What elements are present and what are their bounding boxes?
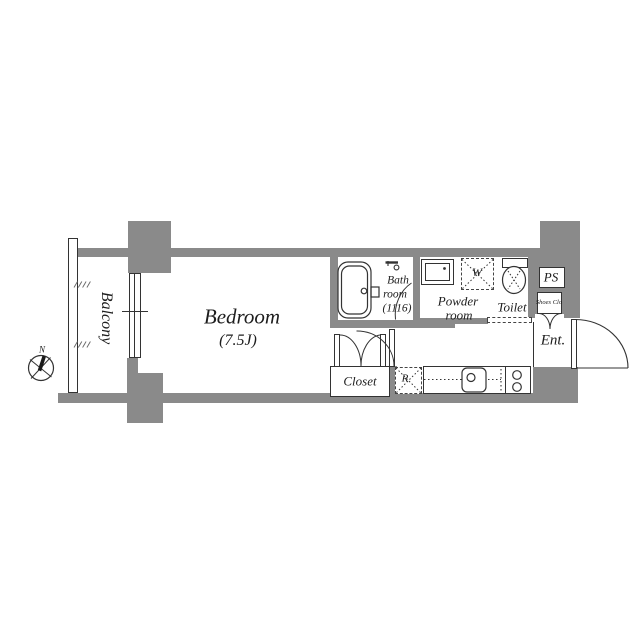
powder-sliding-door xyxy=(487,317,532,323)
powder-room-label-line2: room xyxy=(446,309,473,322)
entrance-door-leaf xyxy=(571,319,577,369)
wall-bath-left xyxy=(330,257,338,328)
entrance-step-line xyxy=(533,322,534,367)
bedroom-door-leaf xyxy=(389,329,395,367)
bedroom-size-label: (7.5J) xyxy=(219,333,257,349)
washer-label: W xyxy=(472,266,482,278)
closet-label: Closet xyxy=(343,375,376,388)
pillar-bottom-left-step xyxy=(127,358,138,374)
closet-door-leaf-right xyxy=(380,334,386,367)
balcony-railing-wall xyxy=(68,238,78,393)
window-sash-line xyxy=(134,274,135,357)
ps-label: PS xyxy=(544,271,558,284)
entrance-door-arc xyxy=(576,320,629,369)
wall-powder-right xyxy=(528,257,535,318)
entrance-label: Ent. xyxy=(541,334,566,349)
pillar-top-left xyxy=(128,221,171,273)
stove-box xyxy=(505,366,531,394)
toilet-label: Toilet xyxy=(497,301,526,314)
toilet-tank xyxy=(502,258,528,268)
closet-door-arc-left xyxy=(340,335,361,366)
wall-bath-powder-divider xyxy=(413,257,420,323)
pillar-top-right xyxy=(540,221,580,253)
shoes-closet-door-arc-right xyxy=(550,314,561,330)
vanity-sink-basin xyxy=(425,263,450,281)
wall-bottom-right-block xyxy=(533,367,578,403)
closet-door-arc-right xyxy=(361,335,380,366)
refrigerator-label: R xyxy=(402,374,409,385)
bathtub-icon xyxy=(338,262,379,318)
kitchen-counter xyxy=(423,366,507,394)
powder-room-label-line1: Powder xyxy=(438,295,478,308)
wall-right-strip xyxy=(564,253,580,318)
closet-door-leaf-left xyxy=(334,334,340,367)
compass-north-label: N xyxy=(39,346,45,355)
floor-plan: Balcony Bedroom (7.5J) Bath room (1116) … xyxy=(0,0,640,640)
bathroom-label-line1: Bath xyxy=(387,275,409,287)
shoes-closet-door-arc-left xyxy=(539,314,550,330)
shoes-closet-label: Shoes Clo xyxy=(536,300,562,307)
fixtures-overlay xyxy=(0,0,640,640)
pillar-bottom-left xyxy=(127,373,163,423)
bathroom-label-line3: (1116) xyxy=(383,303,412,315)
compass-icon xyxy=(29,355,54,380)
bathroom-label-line2: room xyxy=(383,289,407,301)
bedroom-label: Bedroom xyxy=(204,307,280,328)
balcony-label: Balcony xyxy=(98,292,114,344)
shower-faucet-icon xyxy=(386,261,399,270)
toilet-icon xyxy=(503,267,526,294)
